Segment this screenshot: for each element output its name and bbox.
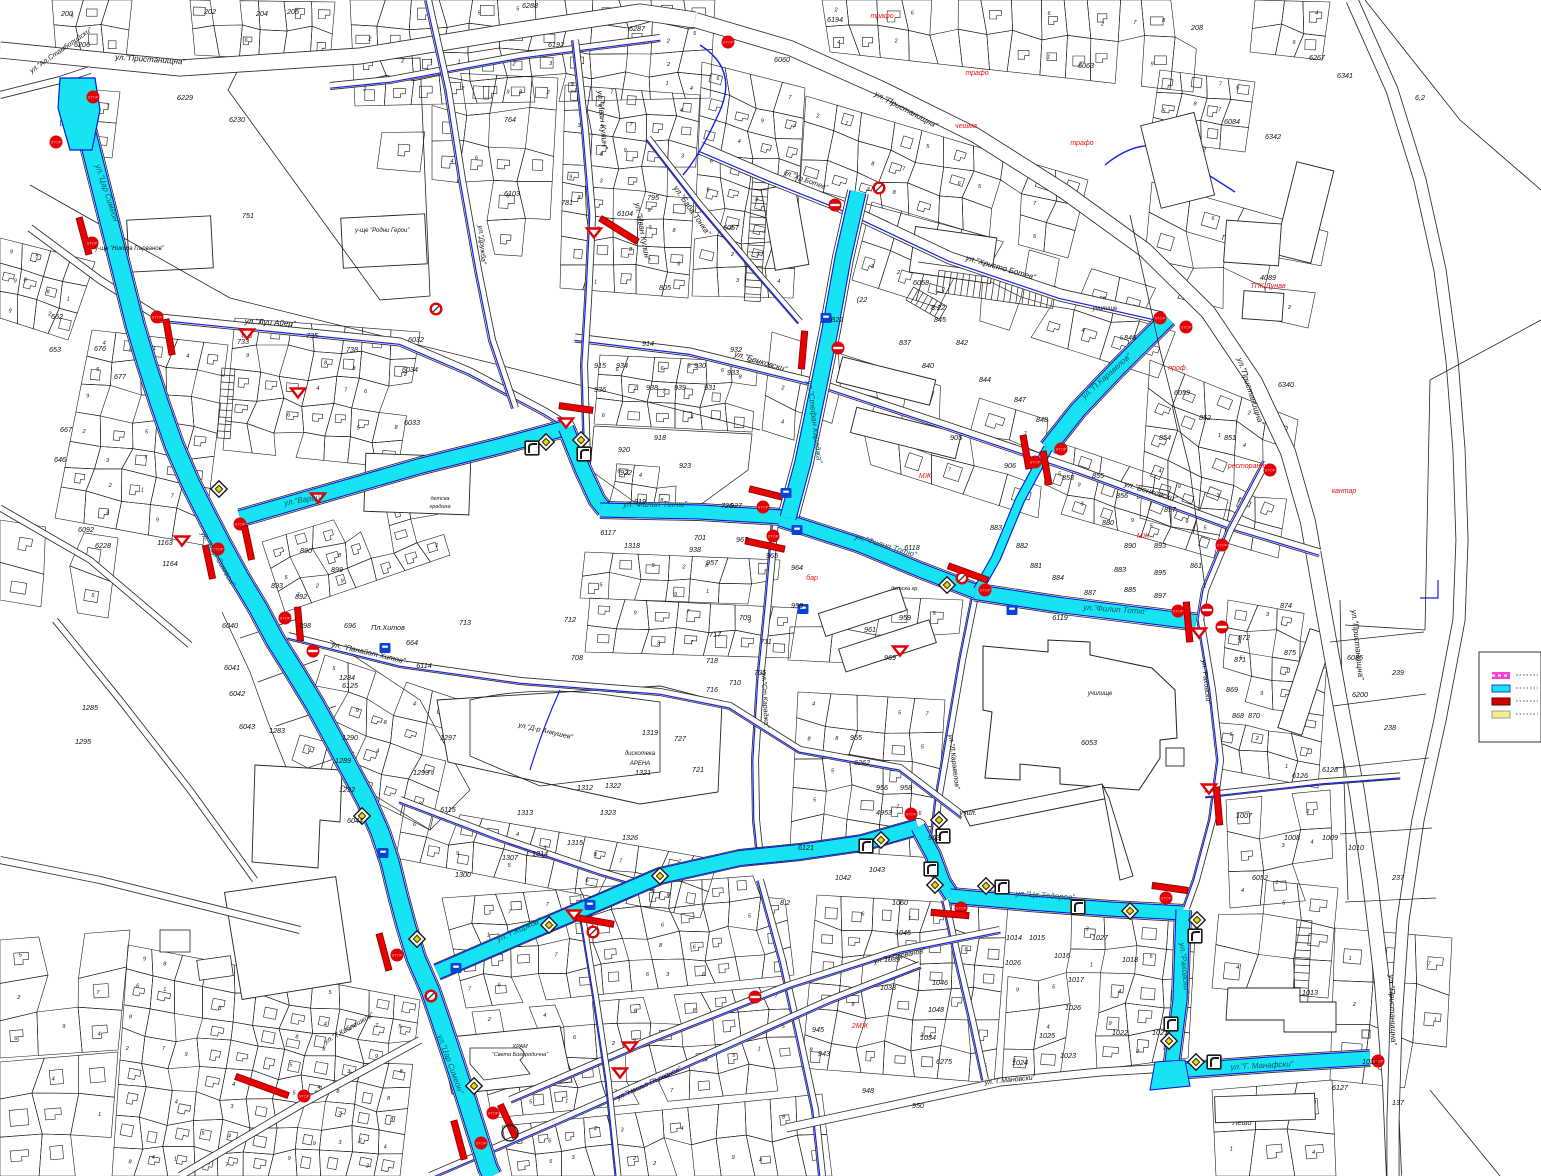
- svg-text:856: 856: [1116, 491, 1128, 500]
- svg-text:9: 9: [341, 579, 344, 585]
- svg-text:837: 837: [899, 338, 912, 347]
- svg-text:957: 957: [706, 558, 719, 567]
- svg-text:855: 855: [1092, 471, 1105, 480]
- svg-text:9: 9: [156, 517, 159, 523]
- svg-text:детска: детска: [431, 496, 450, 502]
- svg-text:1293: 1293: [413, 768, 429, 777]
- svg-text:6340: 6340: [1278, 380, 1294, 389]
- svg-text:1: 1: [435, 543, 438, 549]
- svg-text:887: 887: [1084, 588, 1097, 597]
- svg-text:868: 868: [1232, 711, 1244, 720]
- svg-text:6287: 6287: [629, 24, 646, 33]
- svg-text:958: 958: [900, 783, 912, 792]
- svg-text:1: 1: [98, 1112, 101, 1118]
- svg-text:4: 4: [1158, 468, 1161, 474]
- svg-text:4: 4: [543, 1013, 546, 1019]
- svg-text:МЖ: МЖ: [1137, 533, 1150, 540]
- svg-text:6092: 6092: [78, 525, 94, 534]
- svg-text:6288: 6288: [522, 1, 538, 10]
- svg-text:STOP: STOP: [299, 1094, 310, 1099]
- svg-text:STOP: STOP: [1181, 325, 1192, 330]
- svg-text:9: 9: [184, 1052, 187, 1058]
- svg-text:1: 1: [163, 987, 166, 993]
- svg-text:885: 885: [1124, 585, 1137, 594]
- svg-text:857: 857: [1164, 505, 1177, 514]
- svg-text:840: 840: [922, 361, 934, 370]
- svg-text:1314: 1314: [532, 849, 548, 858]
- svg-text:4: 4: [516, 832, 519, 838]
- svg-text:8.2: 8.2: [780, 898, 790, 907]
- svg-text:6127: 6127: [1332, 1083, 1349, 1092]
- svg-text:4: 4: [691, 415, 694, 421]
- svg-text:4: 4: [1047, 1024, 1050, 1030]
- svg-text:1018: 1018: [1122, 955, 1138, 964]
- svg-text:713: 713: [459, 618, 471, 627]
- svg-text:9: 9: [506, 90, 509, 96]
- svg-text:4: 4: [376, 749, 379, 755]
- svg-text:718: 718: [706, 656, 718, 665]
- svg-text:712: 712: [564, 615, 576, 624]
- svg-text:1: 1: [430, 59, 433, 65]
- svg-text:705: 705: [754, 668, 767, 677]
- svg-text:4: 4: [837, 40, 840, 46]
- svg-text:1043: 1043: [869, 865, 885, 874]
- svg-text:897: 897: [1154, 591, 1167, 600]
- svg-text:9: 9: [569, 175, 572, 181]
- svg-text:6034: 6034: [402, 365, 418, 374]
- svg-text:9: 9: [674, 592, 677, 598]
- svg-text:6033: 6033: [404, 418, 420, 427]
- svg-text:1024: 1024: [1012, 1058, 1028, 1067]
- svg-text:905: 905: [950, 433, 963, 442]
- svg-text:1307: 1307: [502, 853, 519, 862]
- svg-text:852: 852: [1199, 413, 1211, 422]
- svg-text:721: 721: [692, 765, 704, 774]
- svg-text:4: 4: [186, 354, 189, 360]
- svg-text:4: 4: [1118, 989, 1121, 995]
- svg-text:1283: 1283: [269, 726, 285, 735]
- svg-text:1013: 1013: [1302, 988, 1318, 997]
- svg-text:653: 653: [49, 345, 61, 354]
- svg-text:1: 1: [67, 296, 70, 302]
- svg-text:6052: 6052: [1252, 873, 1268, 882]
- svg-text:898: 898: [299, 621, 311, 630]
- svg-text:895: 895: [1154, 568, 1167, 577]
- svg-text:4: 4: [1236, 965, 1239, 971]
- svg-text:1025: 1025: [1039, 1031, 1056, 1040]
- svg-text:9: 9: [8, 309, 11, 315]
- svg-text:STOP: STOP: [1173, 609, 1184, 614]
- svg-text:1023: 1023: [1060, 1051, 1076, 1060]
- svg-text:6228: 6228: [95, 541, 111, 550]
- svg-text:4: 4: [52, 1077, 55, 1083]
- svg-text:STOP: STOP: [980, 588, 991, 593]
- svg-text:963: 963: [928, 833, 940, 842]
- svg-text:6058: 6058: [913, 278, 929, 287]
- svg-text:Пл.Хитов: Пл.Хитов: [371, 623, 405, 632]
- svg-text:964: 964: [791, 563, 803, 572]
- svg-text:1164: 1164: [162, 559, 177, 568]
- svg-text:1: 1: [1285, 764, 1288, 770]
- svg-text:881: 881: [1030, 561, 1042, 570]
- svg-text:ТПК Дунав: ТПК Дунав: [1250, 283, 1286, 290]
- svg-text:училище: училище: [1092, 306, 1118, 312]
- svg-text:трафо: трафо: [965, 70, 988, 77]
- svg-text:1289: 1289: [335, 756, 351, 765]
- svg-text:1042: 1042: [835, 873, 851, 882]
- svg-text:6032: 6032: [408, 335, 424, 344]
- svg-text:237: 237: [1391, 873, 1405, 882]
- svg-text:4: 4: [324, 1022, 327, 1028]
- svg-text:6084: 6084: [1224, 117, 1240, 126]
- svg-text:у-ще ”Никола Първанов”: у-ще ”Никола Първанов”: [94, 246, 165, 252]
- svg-text:9: 9: [1260, 691, 1263, 697]
- svg-text:851: 851: [1224, 433, 1236, 442]
- svg-text:965: 965: [766, 551, 779, 560]
- svg-text:914: 914: [642, 339, 654, 348]
- svg-text:6192: 6192: [548, 40, 564, 49]
- svg-text:бар: бар: [806, 574, 818, 582]
- svg-text:6114: 6114: [416, 661, 431, 670]
- svg-text:9: 9: [1131, 518, 1134, 524]
- svg-text:6,2: 6,2: [1415, 93, 1425, 102]
- svg-text:652: 652: [51, 312, 63, 321]
- svg-text:6126: 6126: [1292, 771, 1308, 780]
- svg-text:9: 9: [1185, 519, 1188, 525]
- svg-text:STOP: STOP: [1056, 447, 1067, 452]
- svg-text:9: 9: [1108, 1021, 1111, 1027]
- svg-text:875: 875: [1284, 648, 1297, 657]
- svg-text:733: 733: [237, 337, 249, 346]
- svg-text:9: 9: [86, 393, 89, 399]
- svg-text:205: 205: [286, 7, 300, 16]
- svg-text:892: 892: [295, 592, 307, 601]
- svg-text:9: 9: [308, 747, 311, 753]
- svg-text:МЖ: МЖ: [919, 473, 932, 480]
- svg-text:795: 795: [647, 193, 660, 202]
- svg-text:6121: 6121: [798, 843, 814, 852]
- svg-text:847: 847: [1014, 395, 1027, 404]
- svg-text:711: 711: [760, 637, 771, 646]
- svg-text:9: 9: [246, 353, 249, 359]
- svg-text:1313: 1313: [517, 808, 533, 817]
- svg-text:1323: 1323: [600, 808, 616, 817]
- svg-text:6117: 6117: [600, 528, 616, 537]
- svg-text:6262: 6262: [854, 758, 870, 767]
- svg-text:9: 9: [600, 152, 603, 158]
- svg-text:9: 9: [1178, 484, 1181, 490]
- svg-text:869: 869: [1226, 685, 1238, 694]
- svg-text:853: 853: [1062, 473, 1074, 482]
- svg-text:708: 708: [571, 653, 583, 662]
- svg-text:1026: 1026: [1065, 1003, 1081, 1012]
- svg-text:STOP: STOP: [88, 95, 99, 100]
- svg-text:933: 933: [727, 368, 739, 377]
- svg-text:6057: 6057: [723, 223, 740, 232]
- svg-text:9: 9: [143, 956, 146, 962]
- svg-text:738: 738: [346, 345, 358, 354]
- svg-text:1007: 1007: [1236, 811, 1253, 820]
- svg-text:872: 872: [1238, 633, 1250, 642]
- svg-text:1022: 1022: [1112, 1028, 1128, 1037]
- svg-text:923: 923: [679, 461, 691, 470]
- svg-text:STOP: STOP: [1161, 896, 1172, 901]
- svg-text:1010: 1010: [1348, 843, 1364, 852]
- svg-text:1297: 1297: [440, 733, 457, 742]
- svg-text:дискотека: дискотека: [625, 751, 656, 757]
- svg-text:6063: 6063: [1078, 61, 1094, 70]
- svg-text:709: 709: [739, 613, 751, 622]
- svg-text:1312: 1312: [577, 783, 593, 792]
- svg-text:6119: 6119: [1052, 613, 1067, 622]
- svg-text:880: 880: [1102, 518, 1114, 527]
- svg-text:1: 1: [1230, 1146, 1233, 1152]
- svg-text:202: 202: [203, 7, 216, 16]
- svg-text:922: 922: [620, 468, 632, 477]
- svg-text:STOP: STOP: [758, 505, 769, 510]
- svg-text:932: 932: [730, 345, 742, 354]
- svg-text:4: 4: [680, 1126, 683, 1132]
- svg-text:(22: (22: [857, 295, 867, 304]
- svg-text:ресторант: ресторант: [1227, 463, 1266, 470]
- svg-text:1039: 1039: [884, 955, 900, 964]
- svg-text:6053: 6053: [1081, 738, 1097, 747]
- svg-text:чешма: чешма: [955, 123, 977, 130]
- svg-text:6043: 6043: [239, 722, 255, 731]
- svg-text:915: 915: [594, 361, 607, 370]
- svg-text:учил.: учил.: [958, 808, 976, 817]
- svg-text:1046: 1046: [932, 978, 948, 987]
- svg-text:1: 1: [1218, 433, 1221, 439]
- svg-text:845: 845: [934, 315, 947, 324]
- svg-text:945: 945: [812, 1025, 825, 1034]
- svg-text:6230: 6230: [229, 115, 245, 124]
- svg-text:”Свето Богородична”: ”Свето Богородична”: [492, 1052, 549, 1058]
- svg-text:204: 204: [255, 9, 268, 18]
- svg-text:4: 4: [1315, 11, 1318, 17]
- svg-text:4: 4: [1312, 1150, 1315, 1156]
- svg-text:1038: 1038: [880, 983, 896, 992]
- svg-text:874: 874: [1280, 601, 1292, 610]
- svg-text:4: 4: [1081, 328, 1084, 334]
- svg-text:1290: 1290: [342, 733, 358, 742]
- svg-text:764: 764: [504, 115, 516, 124]
- svg-text:4: 4: [777, 279, 780, 285]
- svg-text:956: 956: [876, 783, 888, 792]
- svg-text:4: 4: [384, 1145, 387, 1151]
- svg-text:1315: 1315: [567, 838, 584, 847]
- svg-text:9: 9: [651, 563, 654, 569]
- svg-text:STOP: STOP: [1265, 468, 1276, 473]
- svg-text:трафо: трафо: [870, 13, 893, 20]
- svg-text:848: 848: [1036, 415, 1048, 424]
- svg-text:4: 4: [1310, 839, 1313, 845]
- svg-text:710: 710: [729, 678, 741, 687]
- svg-text:200: 200: [60, 9, 73, 18]
- svg-text:9: 9: [14, 278, 17, 284]
- svg-text:208: 208: [1190, 23, 1203, 32]
- svg-text:4: 4: [175, 1099, 178, 1105]
- svg-text:1027: 1027: [1092, 933, 1109, 942]
- svg-text:6040: 6040: [222, 621, 238, 630]
- svg-text:4: 4: [413, 702, 416, 708]
- svg-text:1016: 1016: [1054, 951, 1070, 960]
- svg-text:1: 1: [1047, 55, 1050, 61]
- svg-text:899: 899: [331, 565, 343, 574]
- svg-text:STOP: STOP: [280, 616, 291, 621]
- svg-text:9: 9: [571, 82, 574, 88]
- svg-text:239: 239: [1391, 668, 1404, 677]
- svg-text:882: 882: [1016, 541, 1028, 550]
- svg-text:861: 861: [1190, 561, 1202, 570]
- svg-text:6229: 6229: [177, 93, 193, 102]
- svg-text:9: 9: [456, 851, 459, 857]
- svg-text:STOP: STOP: [488, 1111, 499, 1116]
- svg-text:9: 9: [431, 771, 434, 777]
- svg-text:1045: 1045: [895, 928, 912, 937]
- svg-text:1: 1: [1090, 963, 1093, 969]
- svg-text:9: 9: [288, 1156, 291, 1162]
- svg-text:717: 717: [709, 630, 722, 639]
- svg-text:STOP: STOP: [476, 1141, 487, 1146]
- svg-text:959: 959: [899, 613, 911, 622]
- svg-text:4: 4: [228, 1134, 231, 1140]
- svg-text:1017: 1017: [1068, 975, 1085, 984]
- svg-text:6200: 6200: [1352, 690, 1368, 699]
- svg-text:906: 906: [1004, 461, 1016, 470]
- svg-text:9: 9: [313, 1141, 316, 1147]
- svg-text:6059: 6059: [1174, 388, 1190, 397]
- svg-text:701: 701: [694, 533, 706, 542]
- svg-text:STOP: STOP: [87, 241, 98, 246]
- svg-text:9: 9: [624, 148, 627, 154]
- svg-text:STOP: STOP: [1217, 543, 1228, 548]
- svg-text:4: 4: [738, 139, 741, 145]
- svg-text:846: 846: [1124, 333, 1136, 342]
- svg-text:1321: 1321: [635, 768, 651, 777]
- svg-text:STOP: STOP: [723, 40, 734, 45]
- svg-text:STOP: STOP: [235, 522, 246, 527]
- svg-text:9: 9: [634, 611, 637, 617]
- svg-text:677: 677: [114, 372, 127, 381]
- svg-text:ул.”Филип Тотю”: ул.”Филип Тотю”: [622, 500, 687, 509]
- svg-text:646: 646: [54, 455, 66, 464]
- svg-text:943: 943: [818, 1049, 830, 1058]
- svg-text:6267: 6267: [1309, 53, 1326, 62]
- svg-text:936: 936: [594, 385, 606, 394]
- svg-text:930: 930: [694, 361, 706, 370]
- svg-text:6044: 6044: [347, 816, 363, 825]
- svg-text:училище: училище: [1087, 691, 1113, 697]
- svg-text:6042: 6042: [229, 689, 245, 698]
- svg-text:8.22: 8.22: [931, 303, 945, 312]
- svg-text:4: 4: [98, 1031, 101, 1037]
- svg-text:939: 939: [674, 383, 686, 392]
- svg-text:805: 805: [659, 283, 672, 292]
- svg-text:884: 884: [1052, 573, 1064, 582]
- svg-text:4: 4: [759, 1158, 762, 1164]
- svg-text:955: 955: [850, 733, 863, 742]
- svg-text:6275: 6275: [936, 1057, 953, 1066]
- svg-text:STOP: STOP: [152, 315, 163, 320]
- svg-text:727: 727: [674, 734, 687, 743]
- svg-text:1: 1: [1275, 880, 1278, 886]
- svg-text:у-ще ”Родни Герои”: у-ще ”Родни Герои”: [354, 228, 410, 234]
- svg-text:1163: 1163: [157, 538, 172, 547]
- svg-text:STOP: STOP: [956, 906, 967, 911]
- svg-text:1300: 1300: [455, 870, 471, 879]
- svg-text:1021: 1021: [1152, 1028, 1168, 1037]
- svg-text:9: 9: [732, 1155, 735, 1161]
- svg-text:676: 676: [94, 344, 106, 353]
- svg-text:ХРАМ: ХРАМ: [511, 1044, 528, 1050]
- svg-text:961: 961: [864, 625, 876, 634]
- svg-text:1295: 1295: [75, 737, 92, 746]
- svg-text:938: 938: [646, 383, 658, 392]
- svg-text:1: 1: [706, 589, 709, 595]
- svg-text:6341: 6341: [1337, 71, 1353, 80]
- svg-text:1: 1: [487, 932, 490, 938]
- svg-text:STOP: STOP: [392, 953, 403, 958]
- svg-text:6115: 6115: [440, 805, 456, 814]
- svg-text:1: 1: [757, 1046, 760, 1052]
- svg-text:1034: 1034: [920, 1033, 936, 1042]
- svg-text:STOP: STOP: [1030, 460, 1041, 465]
- svg-text:967: 967: [736, 535, 749, 544]
- svg-text:1319: 1319: [642, 728, 658, 737]
- svg-text:6194: 6194: [827, 15, 843, 24]
- svg-text:4089: 4089: [1260, 273, 1276, 282]
- svg-text:B22: B22: [831, 315, 844, 324]
- svg-text:4: 4: [690, 86, 693, 92]
- svg-text:1: 1: [141, 488, 144, 494]
- svg-text:проф.: проф.: [1168, 365, 1187, 372]
- svg-text:6128: 6128: [1322, 765, 1338, 774]
- svg-text:6206: 6206: [74, 40, 90, 49]
- svg-text:931: 931: [704, 383, 716, 392]
- svg-text:893: 893: [1154, 541, 1166, 550]
- svg-text:934: 934: [616, 361, 628, 370]
- svg-text:751: 751: [242, 211, 254, 220]
- svg-text:4: 4: [812, 702, 815, 708]
- svg-text:1: 1: [1286, 669, 1289, 675]
- svg-text:4: 4: [152, 1155, 155, 1161]
- svg-text:918: 918: [654, 433, 666, 442]
- svg-text:948: 948: [862, 1086, 874, 1095]
- svg-text:6060: 6060: [774, 55, 790, 64]
- svg-text:920: 920: [618, 445, 630, 454]
- svg-text:6125: 6125: [342, 681, 359, 690]
- svg-text:4: 4: [1243, 443, 1246, 449]
- svg-text:716: 716: [706, 685, 718, 694]
- svg-text:1292: 1292: [339, 785, 355, 794]
- svg-text:6118: 6118: [904, 543, 919, 552]
- svg-text:6342: 6342: [1265, 132, 1281, 141]
- svg-text:9: 9: [356, 708, 359, 714]
- svg-text:938: 938: [689, 545, 701, 554]
- svg-text:871: 871: [1234, 655, 1246, 664]
- svg-text:кантар: кантар: [1332, 488, 1357, 495]
- svg-text:4: 4: [781, 419, 784, 425]
- svg-text:1026: 1026: [1005, 958, 1021, 967]
- svg-text:664: 664: [406, 638, 418, 647]
- svg-text:1009: 1009: [1322, 833, 1338, 842]
- svg-text:1318: 1318: [624, 541, 640, 550]
- svg-text:9: 9: [62, 1024, 65, 1030]
- svg-text:1: 1: [565, 1099, 568, 1105]
- svg-text:950: 950: [912, 1101, 924, 1110]
- svg-text:1060: 1060: [892, 898, 908, 907]
